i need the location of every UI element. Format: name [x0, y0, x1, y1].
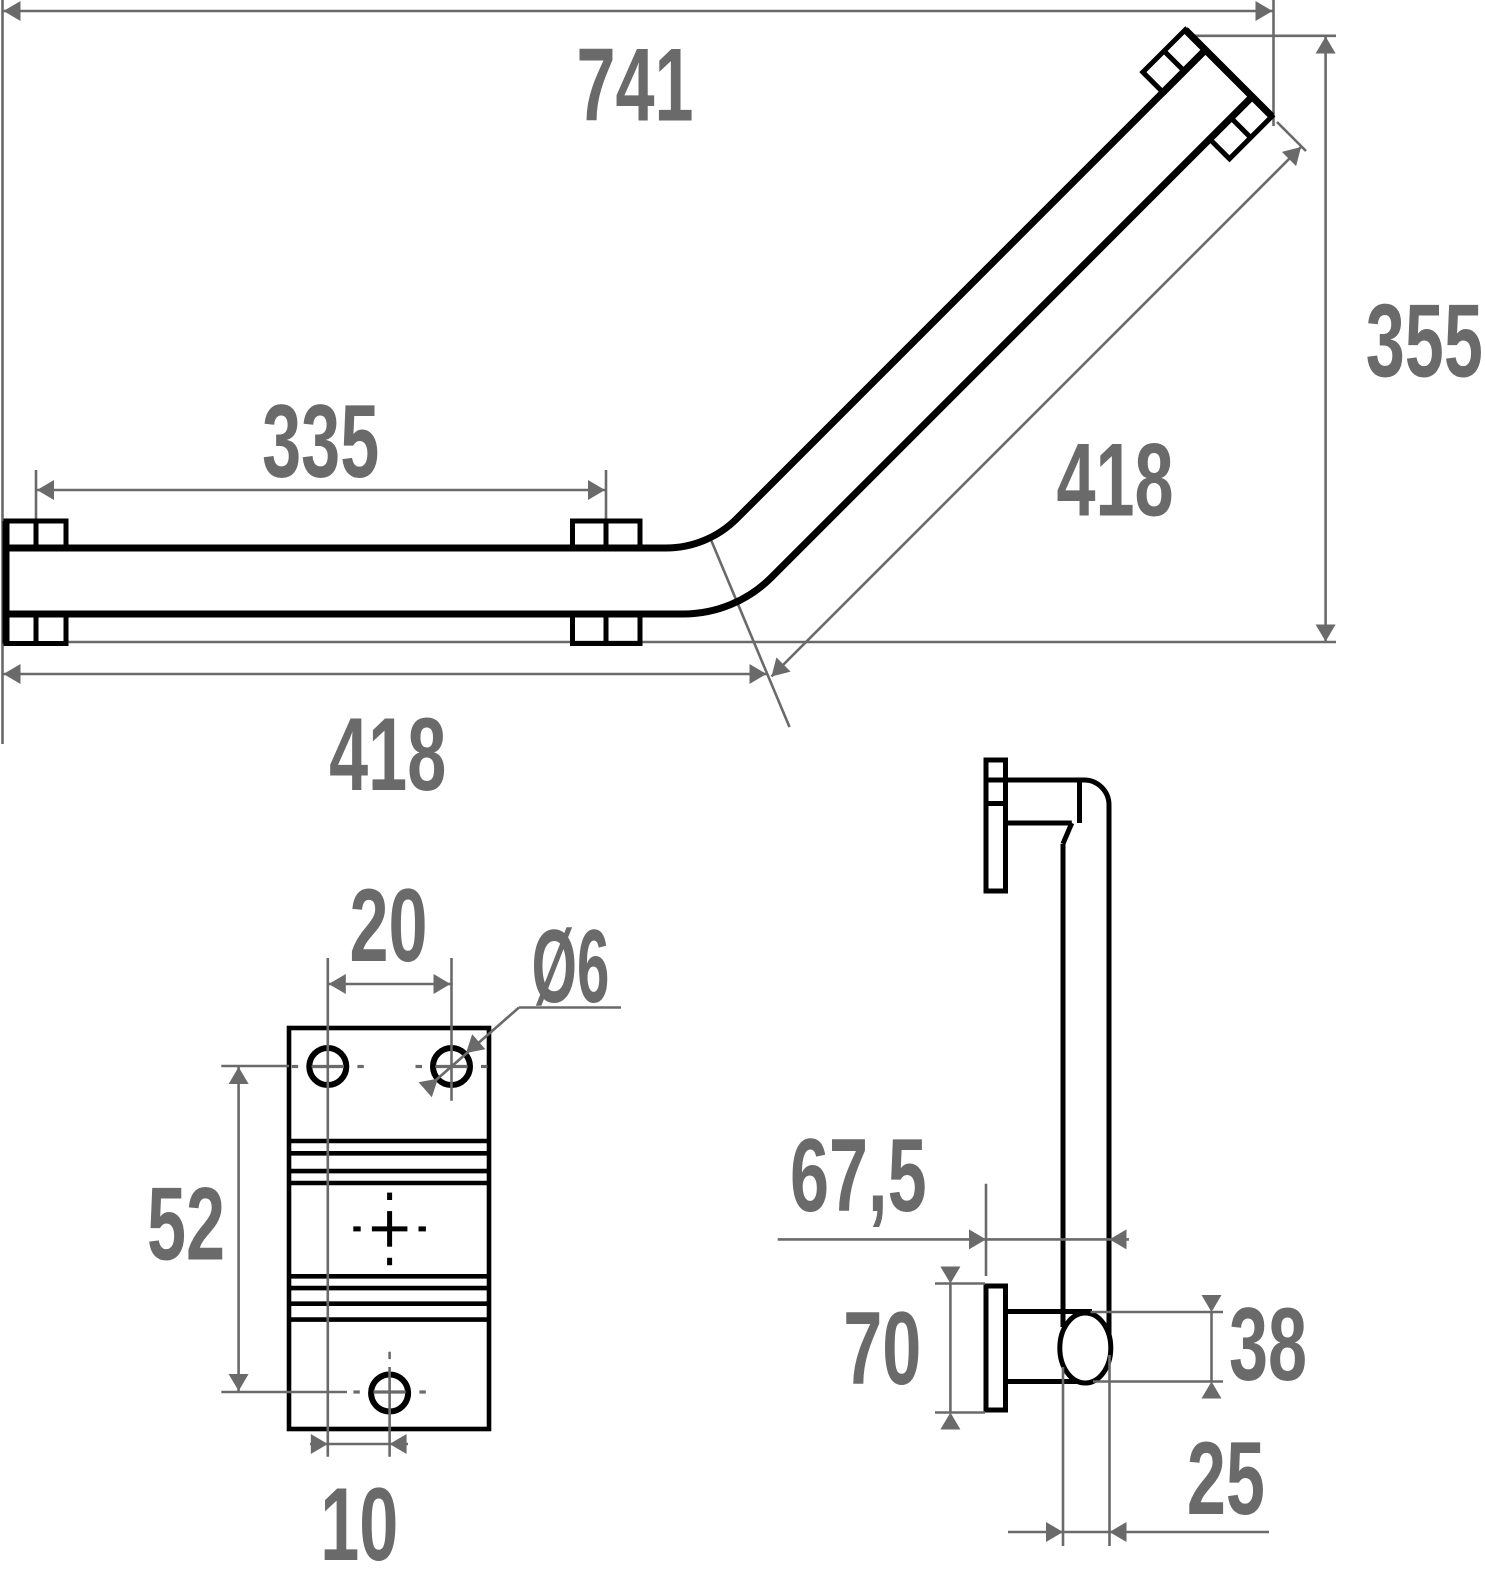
- svg-text:741: 741: [576, 27, 693, 143]
- svg-text:355: 355: [1366, 283, 1483, 399]
- svg-text:70: 70: [843, 1290, 921, 1406]
- svg-text:67,5: 67,5: [790, 1117, 927, 1233]
- svg-text:418: 418: [1056, 422, 1173, 538]
- svg-text:52: 52: [147, 1166, 225, 1282]
- svg-text:418: 418: [329, 696, 446, 812]
- svg-text:20: 20: [349, 867, 427, 983]
- svg-text:38: 38: [1229, 1286, 1307, 1402]
- svg-text:25: 25: [1187, 1420, 1265, 1536]
- svg-text:335: 335: [262, 383, 379, 499]
- svg-text:10: 10: [320, 1466, 398, 1582]
